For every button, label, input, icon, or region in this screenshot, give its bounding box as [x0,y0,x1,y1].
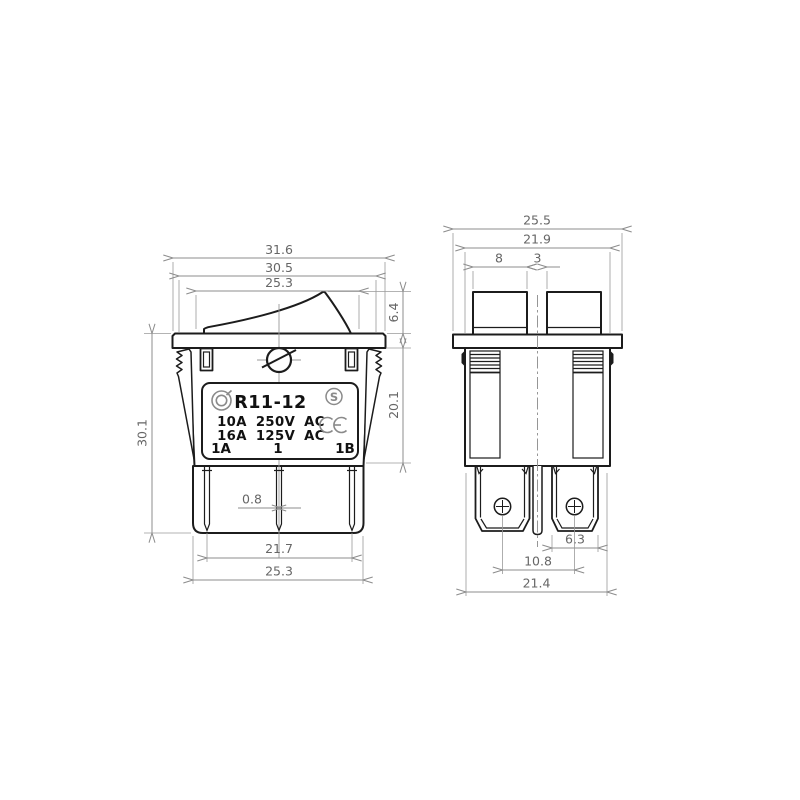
dim-body-depth-text: 20.1 [386,391,401,419]
drawing-canvas: R11-12 S 10A 250V AC 16A 125V AC 1A 1 1B [0,0,800,800]
terminal-housing [193,466,364,533]
dim-rocker-width-text: 25.3 [265,275,293,290]
model-number: R11-12 [234,393,306,413]
dimension-drawing-svg: R11-12 S 10A 250V AC 16A 125V AC 1A 1 1B [0,0,800,800]
terminal-id-left: 1A [211,441,231,457]
dim-terminal-width-text: 6.3 [565,532,585,547]
dim-blade-span-text: 21.7 [265,541,293,556]
dim-overall-height-text: 30.1 [135,419,150,447]
terminal-hole-right [566,498,582,514]
dim-rocker-gap-text: 3 [534,251,542,266]
dim-flange-top-width-text: 30.5 [265,260,293,275]
rocker-edge-right [547,292,601,335]
terminal-id-center: 1 [273,441,282,457]
dim-side-base-width-text: 21.4 [523,576,551,591]
dim-terminal-pitch-text: 10.8 [524,554,552,569]
rating-label: R11-12 S 10A 250V AC 16A 125V AC 1A 1 1B [202,383,358,459]
dim-rocker-half-width-text: 8 [495,251,503,266]
rating-line-1: 10A 250V AC [217,415,325,430]
rocker-edge-left [473,292,527,335]
dim-base-width-front-text: 25.3 [265,564,293,579]
s-mark-letter: S [330,390,338,404]
terminal-hole-left [494,498,510,514]
dim-rocker-height-text: 6.4 [386,303,401,323]
dim-flange-width-text: 31.6 [265,242,293,257]
rating-line-2: 16A 125V AC [217,429,325,444]
terminal-id-right: 1B [335,441,355,457]
dim-blade-thickness-text: 0.8 [242,492,262,507]
dim-side-flange-width-text: 25.5 [523,213,551,228]
dim-side-body-width-text: 21.9 [523,232,551,247]
